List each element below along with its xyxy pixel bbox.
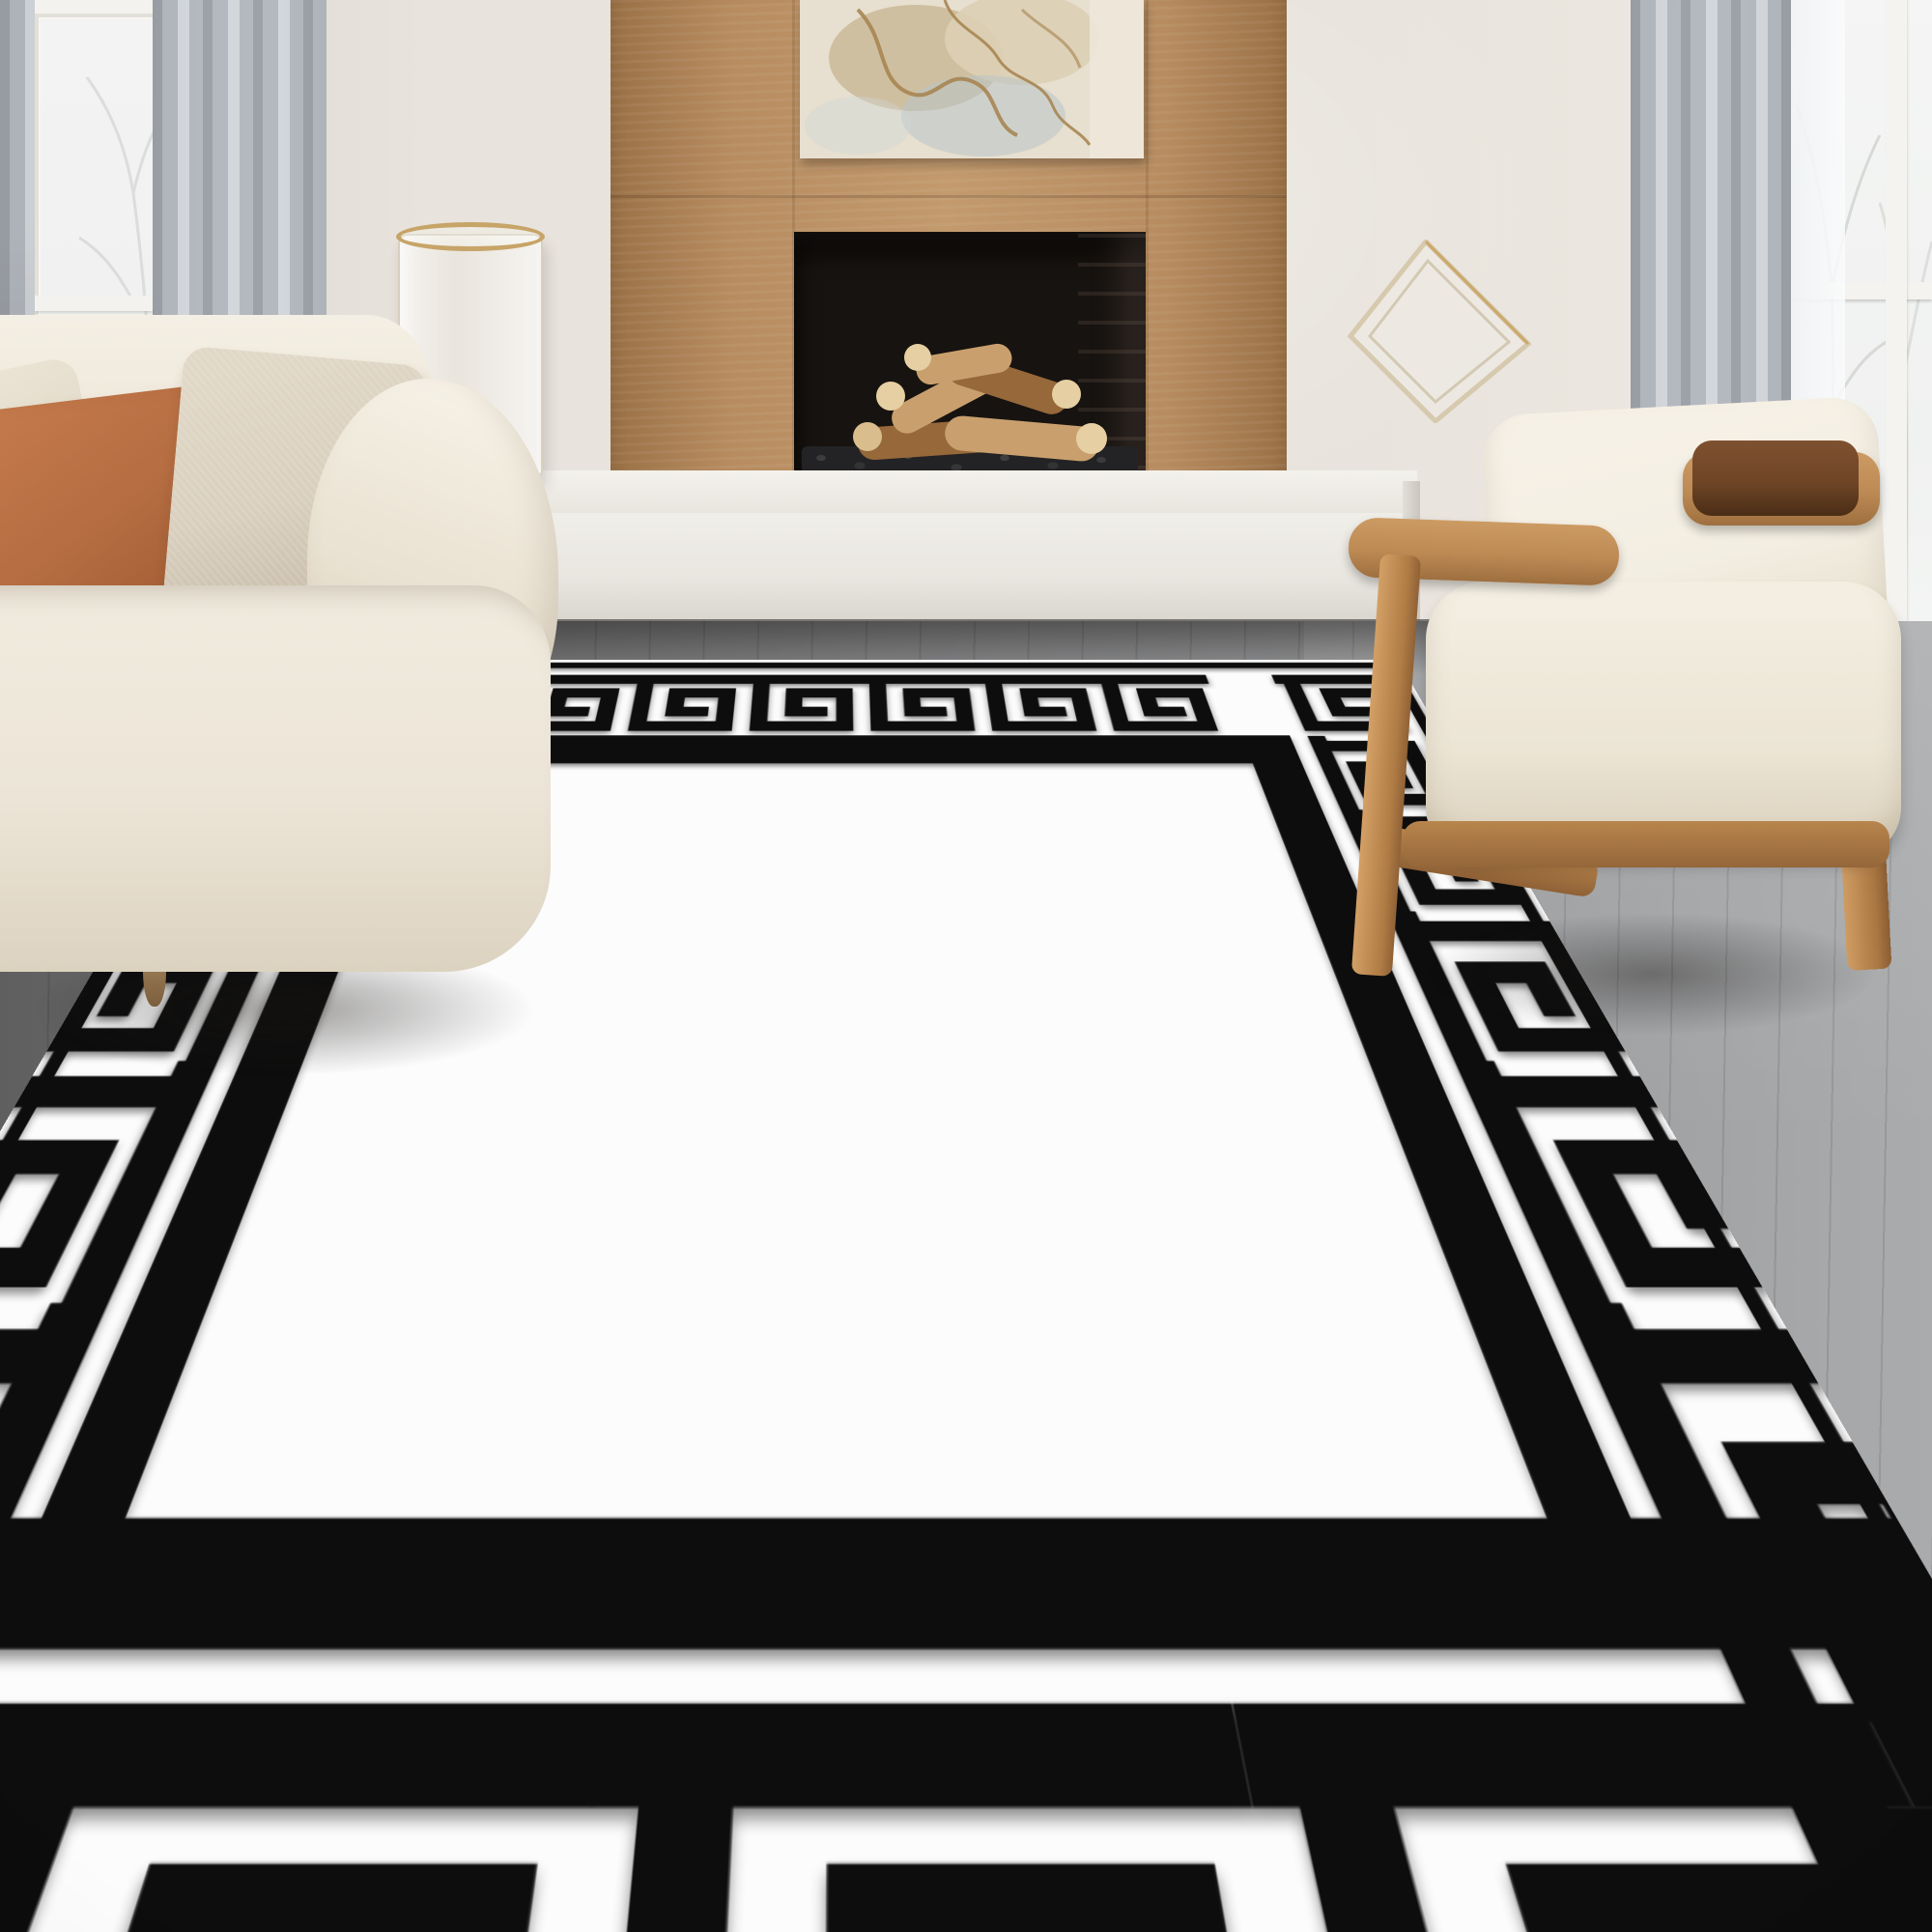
armchair-front-rail bbox=[1403, 821, 1889, 867]
far-left-curtain bbox=[0, 0, 35, 330]
armchair-shadow bbox=[1333, 887, 1932, 1061]
fireplace-panel-seam bbox=[611, 195, 1287, 198]
living-room-scene bbox=[0, 0, 1932, 1932]
firewood-logs bbox=[829, 338, 1119, 473]
sofa-seat bbox=[0, 585, 551, 972]
abstract-artwork bbox=[800, 0, 1144, 158]
armchair-seat-cushion bbox=[1426, 582, 1901, 858]
glass-diamond-sculpture bbox=[1347, 240, 1536, 423]
artwork-canvas bbox=[800, 0, 1144, 158]
fireplace-panel-seam-right bbox=[1146, 0, 1149, 493]
armchair-leather-sling bbox=[1692, 440, 1859, 516]
hurricane-vase-gold-rim bbox=[396, 222, 545, 251]
firebox bbox=[794, 232, 1146, 498]
